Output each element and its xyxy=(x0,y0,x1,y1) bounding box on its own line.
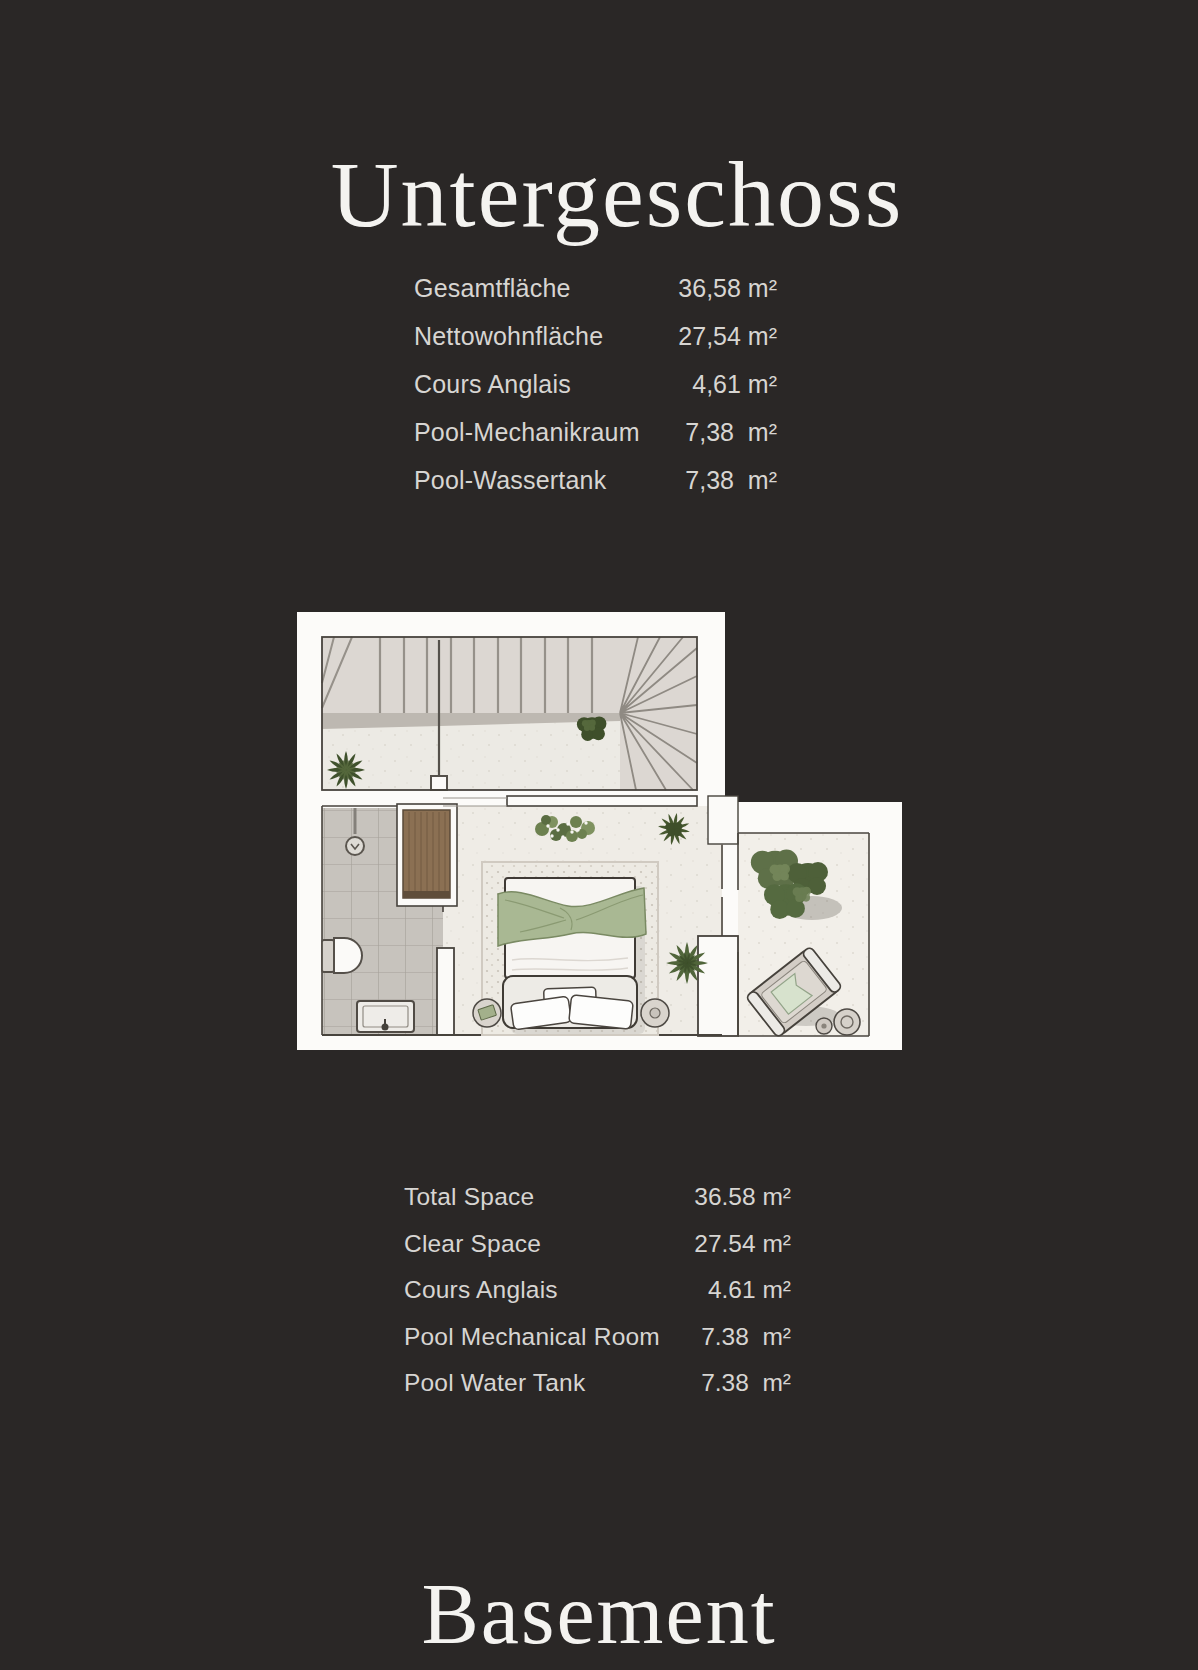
room-area: 4.61 m² xyxy=(708,1276,791,1304)
page-title-english: Basement xyxy=(0,1571,1198,1657)
page-title-german: Untergeschoss xyxy=(18,147,1198,241)
room-label: Pool Water Tank xyxy=(404,1369,585,1397)
stair-newel xyxy=(431,776,447,790)
room-area: 7.38 m² xyxy=(701,1323,791,1351)
nightstand-left xyxy=(473,999,501,1027)
table-row: Cours Anglais 4.61 m² xyxy=(404,1267,791,1314)
room-label: Total Space xyxy=(404,1183,534,1211)
room-label: Pool-Mechanikraum xyxy=(414,418,640,447)
table-row: Gesamtfläche 36,58 m² xyxy=(414,264,777,312)
floor-plan xyxy=(297,612,902,1050)
room-label: Nettowohnfläche xyxy=(414,322,603,351)
bed xyxy=(498,878,646,1030)
table-row: Clear Space 27.54 m² xyxy=(404,1221,791,1268)
room-area: 4,61 m² xyxy=(692,370,777,399)
wardrobe xyxy=(397,804,457,906)
room-label: Pool-Wassertank xyxy=(414,466,606,495)
room-area: 7,38 m² xyxy=(685,418,777,447)
table-row: Pool Mechanical Room 7.38 m² xyxy=(404,1314,791,1361)
table-row: Cours Anglais 4,61 m² xyxy=(414,360,777,408)
room-area: 36.58 m² xyxy=(694,1183,791,1211)
room-label: Gesamtfläche xyxy=(414,274,571,303)
floor-plan-svg xyxy=(297,612,902,1050)
bedroom xyxy=(473,862,669,1035)
area-table-german: Gesamtfläche 36,58 m² Nettowohnfläche 27… xyxy=(414,264,777,504)
room-label: Pool Mechanical Room xyxy=(404,1323,660,1351)
nightstand-right xyxy=(641,999,669,1027)
side-table-small xyxy=(816,1018,832,1034)
table-row: Nettowohnfläche 27,54 m² xyxy=(414,312,777,360)
room-area: 27.54 m² xyxy=(694,1230,791,1258)
table-row: Pool Water Tank 7.38 m² xyxy=(404,1360,791,1407)
table-row: Total Space 36.58 m² xyxy=(404,1174,791,1221)
room-area: 27,54 m² xyxy=(678,322,777,351)
toilet xyxy=(322,938,362,973)
table-row: Pool-Wassertank 7,38 m² xyxy=(414,456,777,504)
sink xyxy=(357,1001,414,1032)
wall-stub-bathroom-door xyxy=(437,948,454,1035)
table-row: Pool-Mechanikraum 7,38 m² xyxy=(414,408,777,456)
wall-stub-patio xyxy=(698,936,738,1036)
room-label: Cours Anglais xyxy=(414,370,571,399)
area-table-english: Total Space 36.58 m² Clear Space 27.54 m… xyxy=(404,1174,791,1407)
room-label: Cours Anglais xyxy=(404,1276,558,1304)
room-area: 7,38 m² xyxy=(685,466,777,495)
side-table-large xyxy=(834,1009,860,1035)
room-label: Clear Space xyxy=(404,1230,541,1258)
room-area: 7.38 m² xyxy=(701,1369,791,1397)
room-area: 36,58 m² xyxy=(678,274,777,303)
